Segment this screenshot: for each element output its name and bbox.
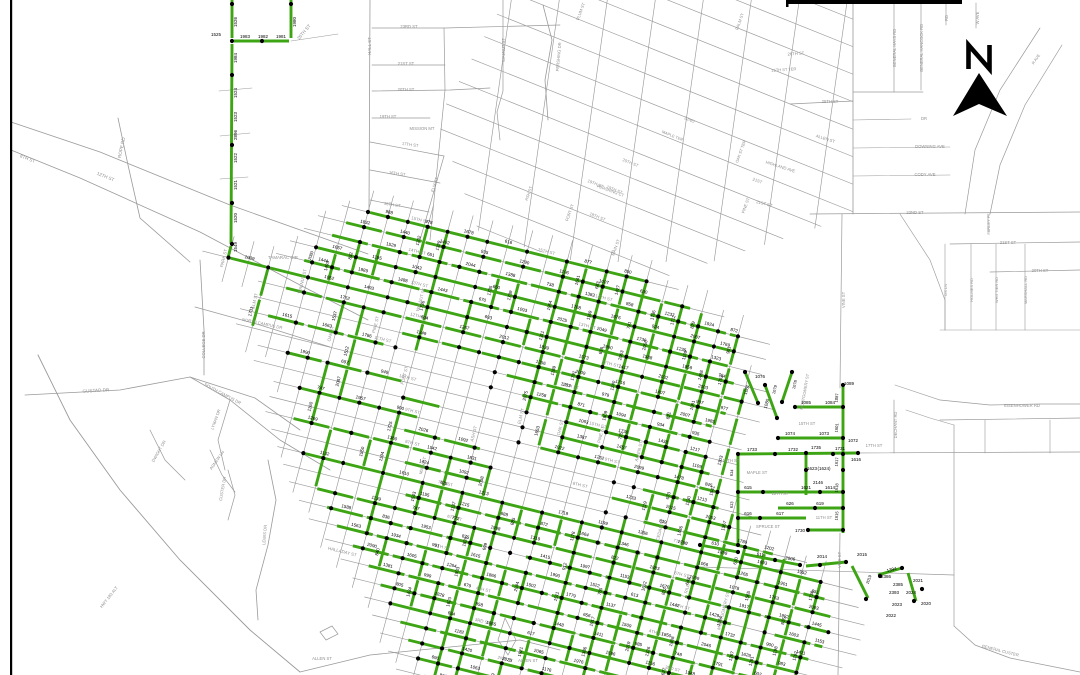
svg-text:1523: 1523 xyxy=(233,111,238,122)
svg-text:2015: 2015 xyxy=(857,552,868,557)
svg-text:1076: 1076 xyxy=(755,374,766,379)
svg-text:CODY AVE: CODY AVE xyxy=(914,172,935,177)
svg-text:1732: 1732 xyxy=(788,447,799,452)
svg-text:614: 614 xyxy=(729,469,735,477)
svg-text:23RD ST: 23RD ST xyxy=(400,24,418,29)
svg-text:2021: 2021 xyxy=(913,578,924,583)
svg-text:ALLEN ST: ALLEN ST xyxy=(312,656,332,661)
svg-text:615: 615 xyxy=(744,485,752,490)
svg-text:2386: 2386 xyxy=(881,574,892,579)
svg-text:12TH ST: 12TH ST xyxy=(772,491,789,496)
svg-text:DOWNING AVE: DOWNING AVE xyxy=(915,144,945,149)
svg-text:MARSHALL RD: MARSHALL RD xyxy=(1023,276,1028,304)
svg-text:VINE ST: VINE ST xyxy=(837,551,842,568)
svg-text:TAMARAC CIR: TAMARAC CIR xyxy=(268,255,298,260)
svg-text:GENERAL HAYS RD: GENERAL HAYS RD xyxy=(892,29,897,67)
svg-text:SPRUCE ST: SPRUCE ST xyxy=(756,524,780,529)
svg-text:1621: 1621 xyxy=(801,485,812,490)
svg-text:1072: 1072 xyxy=(848,438,859,443)
svg-text:2385: 2385 xyxy=(893,582,904,587)
svg-text:22ND ST: 22ND ST xyxy=(906,210,924,215)
svg-text:WALNUT ST: WALNUT ST xyxy=(501,38,506,62)
svg-text:1549: 1549 xyxy=(233,241,238,252)
svg-text:21ST ST: 21ST ST xyxy=(398,61,415,66)
svg-text:1524: 1524 xyxy=(233,87,238,98)
svg-text:1983: 1983 xyxy=(240,34,251,39)
svg-text:617: 617 xyxy=(776,511,784,516)
svg-text:MAPLE ST: MAPLE ST xyxy=(747,470,768,475)
svg-text:VINE ST: VINE ST xyxy=(841,291,846,308)
svg-text:1085: 1085 xyxy=(801,400,812,405)
svg-text:17TH ST: 17TH ST xyxy=(866,443,883,448)
svg-text:1084: 1084 xyxy=(825,400,836,405)
svg-text:619: 619 xyxy=(816,501,824,506)
svg-text:21ST ST: 21ST ST xyxy=(1000,240,1017,245)
svg-text:15TH ST: 15TH ST xyxy=(799,421,816,426)
svg-text:2393: 2393 xyxy=(889,590,900,595)
svg-text:20TH ST: 20TH ST xyxy=(1032,268,1049,273)
svg-text:1073: 1073 xyxy=(819,431,830,436)
svg-text:602: 602 xyxy=(754,670,763,675)
svg-text:13TH ST: 13TH ST xyxy=(723,458,740,463)
svg-text:2896: 2896 xyxy=(233,129,238,140)
svg-text:MISSION MT: MISSION MT xyxy=(410,126,435,131)
svg-text:1521: 1521 xyxy=(233,179,238,190)
svg-text:1982: 1982 xyxy=(258,34,269,39)
svg-text:2014: 2014 xyxy=(817,554,828,559)
svg-text:FARLEY PL: FARLEY PL xyxy=(986,213,991,235)
svg-text:DECHANT RD: DECHANT RD xyxy=(893,412,898,439)
svg-text:1984: 1984 xyxy=(233,52,238,63)
svg-text:W AVE: W AVE xyxy=(975,11,980,24)
svg-text:1520: 1520 xyxy=(233,212,238,223)
svg-text:2020: 2020 xyxy=(921,601,932,606)
svg-text:1980: 1980 xyxy=(292,16,297,27)
svg-text:1616: 1616 xyxy=(851,457,862,462)
svg-text:1615: 1615 xyxy=(834,510,840,520)
svg-text:11TH ST: 11TH ST xyxy=(816,515,833,520)
svg-text:1617: 1617 xyxy=(834,456,840,466)
svg-text:1731: 1731 xyxy=(835,446,846,451)
svg-text:1601: 1601 xyxy=(834,422,840,432)
svg-text:HALL ST: HALL ST xyxy=(367,37,372,55)
svg-text:1074: 1074 xyxy=(785,431,796,436)
svg-text:2146: 2146 xyxy=(813,480,824,485)
svg-text:GS LN: GS LN xyxy=(943,284,948,296)
svg-text:626: 626 xyxy=(786,501,794,506)
svg-text:DR: DR xyxy=(921,116,927,121)
svg-text:1730: 1730 xyxy=(795,528,806,533)
svg-text:1089: 1089 xyxy=(844,381,855,386)
svg-text:ALLEN ST: ALLEN ST xyxy=(518,658,538,663)
svg-text:2023: 2023 xyxy=(892,602,903,607)
svg-text:COLLEGE DR: COLLEGE DR xyxy=(201,332,206,359)
svg-text:1735: 1735 xyxy=(811,445,822,450)
svg-text:1614: 1614 xyxy=(825,485,836,490)
svg-text:2022: 2022 xyxy=(886,613,897,618)
svg-text:613: 613 xyxy=(729,501,735,509)
svg-text:19TH ST: 19TH ST xyxy=(380,114,397,119)
svg-text:25TH ST: 25TH ST xyxy=(822,99,839,104)
svg-text:1981: 1981 xyxy=(276,34,287,39)
svg-text:1525: 1525 xyxy=(211,32,222,37)
svg-text:1522: 1522 xyxy=(233,152,238,163)
svg-text:1526: 1526 xyxy=(233,16,238,27)
svg-text:EISENHOWER RD: EISENHOWER RD xyxy=(1004,403,1040,408)
svg-text:1733: 1733 xyxy=(747,447,758,452)
svg-text:2024: 2024 xyxy=(906,590,917,595)
svg-text:616: 616 xyxy=(744,511,752,516)
svg-text:20TH ST: 20TH ST xyxy=(398,87,415,92)
svg-text:HOLMES RD: HOLMES RD xyxy=(969,278,974,302)
svg-text:1623: 1623 xyxy=(807,466,818,471)
svg-text:RD: RD xyxy=(944,15,949,21)
svg-text:GENERAL HANCOCK RD: GENERAL HANCOCK RD xyxy=(919,24,924,72)
svg-text:WHITTIER RD: WHITTIER RD xyxy=(994,277,999,303)
svg-text:(1624): (1624) xyxy=(817,466,831,471)
